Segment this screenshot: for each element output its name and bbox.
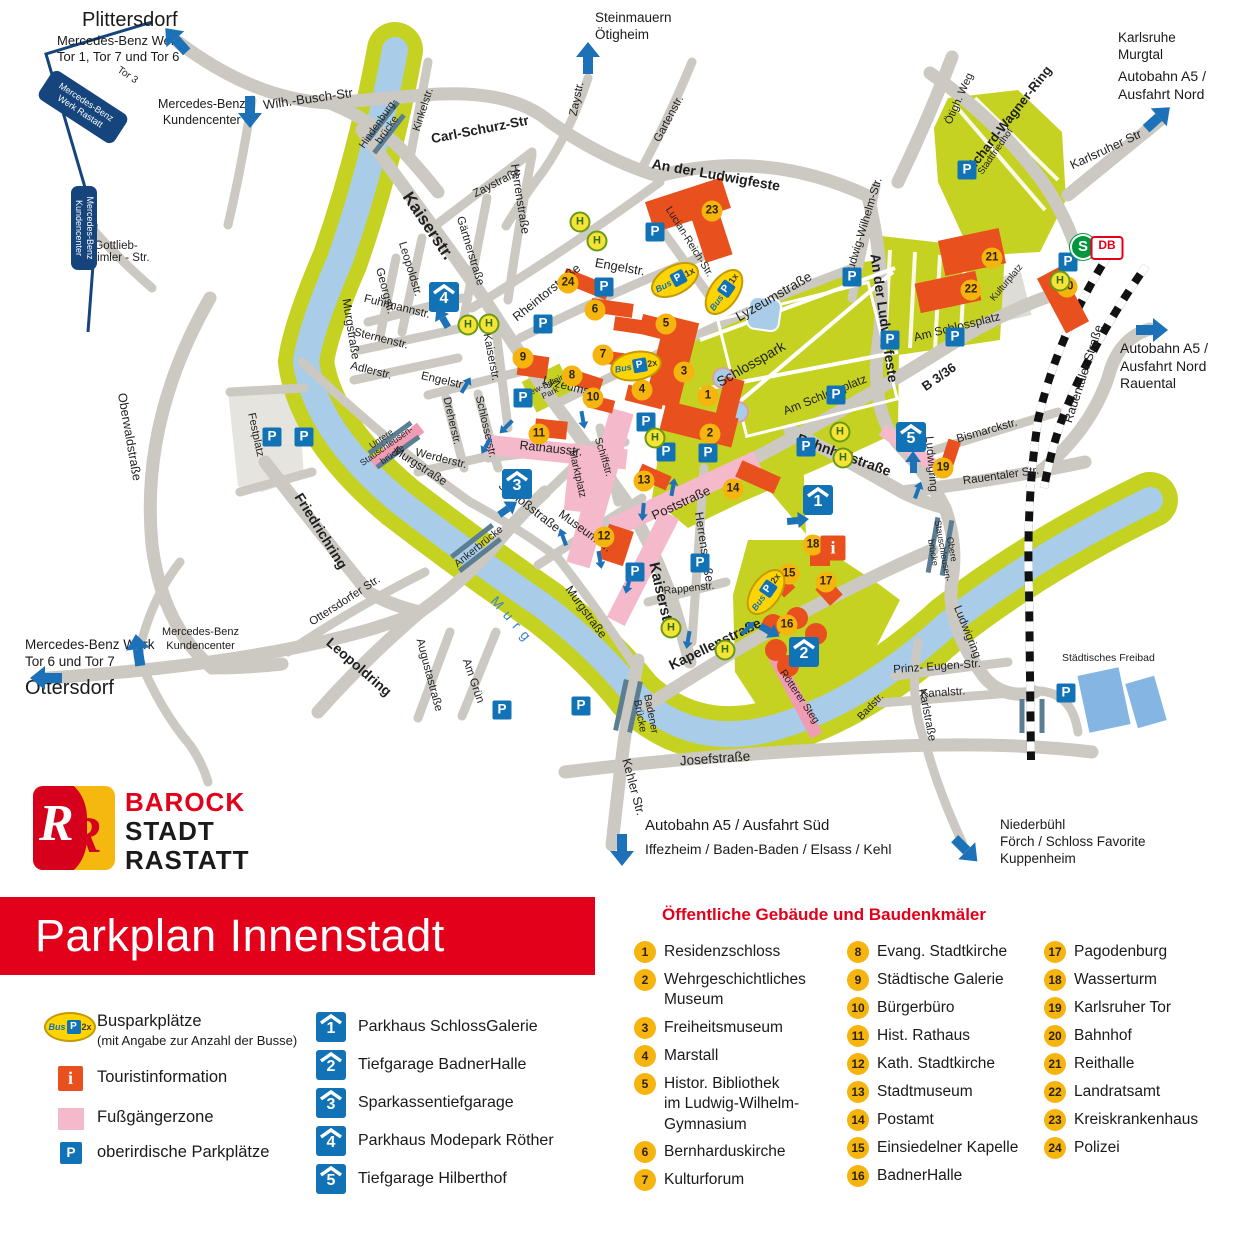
building-number-badge: 16 xyxy=(847,1165,869,1187)
building-number-badge: 6 xyxy=(634,1141,656,1163)
one-way-arrow xyxy=(496,417,516,437)
street-label: Murg xyxy=(488,594,538,649)
building-label: Bahnhof xyxy=(1074,1025,1240,1047)
building-number-badge: 20 xyxy=(1044,1025,1066,1047)
street-label: Lyzeumstraße xyxy=(734,270,815,325)
street-label: Karlsruher Str xyxy=(1068,128,1143,172)
page-title: Parkplan Innenstadt xyxy=(35,910,445,962)
street-label: Gartenstr. xyxy=(652,94,686,144)
building-list-item: 10Bürgerbüro xyxy=(847,997,1072,1019)
building-number-badge: 4 xyxy=(634,1045,656,1067)
building-label: Stadtmuseum xyxy=(877,1081,1072,1103)
destination-label: Mercedes-BenzKundencenter xyxy=(162,626,239,654)
bus-stop-icon: H xyxy=(479,314,500,335)
street-label: Wilh.-Busch-Str xyxy=(262,86,353,112)
street-label: Gärtnerstraße xyxy=(454,215,486,287)
bus-parking-oval: BusP2x xyxy=(608,347,664,386)
buildings-column: 8Evang. Stadtkirche9Städtische Galerie10… xyxy=(847,941,1072,1193)
bus-stop-icon: H xyxy=(570,212,591,233)
poi-marker-21: 21 xyxy=(982,248,1003,269)
tourist-info-icon: i xyxy=(821,536,846,561)
building-number-badge: 8 xyxy=(847,941,869,963)
street-label: Rappenstr. xyxy=(663,581,715,597)
parking-icon: P xyxy=(827,386,846,405)
street-label: Oberwaldstraße xyxy=(115,392,143,482)
one-way-arrow xyxy=(577,410,590,429)
building-number-badge: 18 xyxy=(1044,969,1066,991)
parking-icon: P xyxy=(534,315,553,334)
building-number-badge: 2 xyxy=(634,969,656,991)
parkhaus-legend-label: Parkhaus Modepark Röther xyxy=(358,1132,554,1150)
street-label: Herrenstraße xyxy=(508,163,531,235)
building-list-item: 14Postamt xyxy=(847,1109,1072,1131)
parkhaus-legend-item: 4Parkhaus Modepark Röther xyxy=(316,1126,554,1156)
building-label: Freiheitsmuseum xyxy=(664,1017,844,1039)
parking-icon: P xyxy=(1059,253,1078,272)
parking-icon: P xyxy=(514,389,533,408)
logo-line3: RASTATT xyxy=(125,847,249,873)
bus-parking-legend-icon: BusP2x xyxy=(44,1012,96,1042)
poi-marker-17: 17 xyxy=(816,572,837,593)
bus-stop-icon: H xyxy=(661,618,682,639)
buildings-column: 17Pagodenburg18Wasserturm19Karlsruher To… xyxy=(1044,941,1240,1165)
building-number-badge: 13 xyxy=(847,1081,869,1103)
building-number-badge: 15 xyxy=(847,1137,869,1159)
building-list-item: 24Polizei xyxy=(1044,1137,1240,1159)
building-list-item: 11Hist. Rathaus xyxy=(847,1025,1072,1047)
building-number-badge: 24 xyxy=(1044,1137,1066,1159)
street-label: Fuhrmannstr. xyxy=(363,293,432,321)
parking-icon: P xyxy=(572,697,591,716)
parkhaus-marker-2: 2 xyxy=(789,637,819,667)
logo-line2: STADT xyxy=(125,818,249,844)
bus-stop-icon: H xyxy=(458,315,479,336)
bus-stop-icon: H xyxy=(830,422,851,443)
poi-marker-6: 6 xyxy=(585,300,606,321)
logo-red-r: R xyxy=(67,806,102,865)
street-label: Rauentaler Straße xyxy=(1062,323,1106,424)
destination-label: Autobahn A5 / Ausfahrt Süd xyxy=(645,817,829,836)
street-label: Leopoldstr. xyxy=(396,240,424,297)
poi-marker-8: 8 xyxy=(562,366,583,387)
building-number-badge: 9 xyxy=(847,969,869,991)
building-list-item: 7Kulturforum xyxy=(634,1169,844,1191)
building-list-item: 5Histor. Bibliothek im Ludwig-Wilhelm- G… xyxy=(634,1073,844,1135)
one-way-arrow xyxy=(667,477,680,496)
building-label: Marstall xyxy=(664,1045,844,1067)
building-number-badge: 14 xyxy=(847,1109,869,1131)
building-number-badge: 10 xyxy=(847,997,869,1019)
parkhaus-legend-label: Sparkassentiefgarage xyxy=(358,1094,514,1112)
surface-parking-legend-icon: P xyxy=(60,1142,82,1164)
parkhaus-marker-3: 3 xyxy=(502,469,532,499)
building-list-item: 15Einsiedelner Kapelle xyxy=(847,1137,1072,1159)
building-number-badge: 1 xyxy=(634,941,656,963)
building-label: Bürgerbüro xyxy=(877,997,1072,1019)
buildings-column: 1Residenzschloss2Wehrgeschichtliches Mus… xyxy=(634,941,844,1197)
tourist-info-legend-icon: i xyxy=(58,1066,83,1091)
poi-marker-19: 19 xyxy=(933,458,954,479)
poi-marker-3: 3 xyxy=(674,362,695,383)
street-label: Leopoldring xyxy=(324,635,395,699)
parkhaus-legend-icon: 4 xyxy=(316,1126,346,1156)
street-label: Badener Brücke xyxy=(630,693,659,736)
street-label: Schiffstr. xyxy=(592,436,614,478)
building-list-item: 23Kreiskrankenhaus xyxy=(1044,1109,1240,1131)
street-label: Prinz- Eugen-Str. xyxy=(893,658,981,676)
street-label: Augustastraße xyxy=(413,637,444,712)
street-label: Adlerstr. xyxy=(349,360,393,382)
building-label: Postamt xyxy=(877,1109,1072,1131)
street-label: Kehler Str. xyxy=(619,757,647,817)
poi-marker-10: 10 xyxy=(583,388,604,409)
building-label: Histor. Bibliothek im Ludwig-Wilhelm- Gy… xyxy=(664,1073,844,1135)
parkplan-poster: PlittersdorfMercedes-Benz WerkTor 1, Tor… xyxy=(0,0,1240,1240)
building-label: Städtische Galerie xyxy=(877,969,1072,991)
direction-arrow xyxy=(238,96,262,128)
direction-arrow xyxy=(124,632,152,667)
poi-marker-11: 11 xyxy=(529,424,550,445)
building-number-badge: 21 xyxy=(1044,1053,1066,1075)
poi-marker-7: 7 xyxy=(593,345,614,366)
poi-marker-1: 1 xyxy=(698,386,719,407)
one-way-arrow xyxy=(621,575,635,595)
building-label: Reithalle xyxy=(1074,1053,1240,1075)
poi-marker-23: 23 xyxy=(702,201,723,222)
parking-icon: P xyxy=(699,444,718,463)
street-label: Rötterer Steg xyxy=(777,668,821,726)
building-label: Residenzschloss xyxy=(664,941,844,963)
destination-label: Iffezheim / Baden-Baden / Elsass / Kehl xyxy=(645,841,891,859)
logo-line1: BAROCK xyxy=(125,789,249,815)
building-label: Pagodenburg xyxy=(1074,941,1240,963)
parkhaus-legend-icon: 2 xyxy=(316,1050,346,1080)
bus-oval-text: Bus xyxy=(48,1022,65,1032)
parking-icon: P xyxy=(493,701,512,720)
city-map: PlittersdorfMercedes-Benz WerkTor 1, Tor… xyxy=(0,0,1240,895)
street-label: Marktplatz xyxy=(566,449,588,499)
parkhaus-legend-item: 5Tiefgarage Hilberthof xyxy=(316,1164,507,1194)
street-label: Carl-Schurz-Str xyxy=(430,114,530,147)
poi-marker-4: 4 xyxy=(632,380,653,401)
pedestrian-zone-legend-label: Fußgängerzone xyxy=(97,1108,214,1127)
one-way-arrow xyxy=(910,480,926,500)
direction-arrow xyxy=(1138,98,1178,137)
parkhaus-legend-icon: 1 xyxy=(316,1012,346,1042)
building-label: Landratsamt xyxy=(1074,1081,1240,1103)
direction-arrow xyxy=(576,42,600,74)
parkhaus-legend-label: Tiefgarage BadnerHalle xyxy=(358,1056,526,1074)
tourist-info-legend-label: Touristinformation xyxy=(97,1068,227,1087)
street-label: Ludwigring xyxy=(951,604,983,660)
poi-marker-5: 5 xyxy=(656,314,677,335)
building-list-item: 20Bahnhof xyxy=(1044,1025,1240,1047)
building-list-item: 16BadnerHalle xyxy=(847,1165,1072,1187)
building-label: Kath. Stadtkirche xyxy=(877,1053,1072,1075)
poi-marker-2: 2 xyxy=(700,424,721,445)
one-way-arrow xyxy=(637,503,649,522)
map-overlay-labels: PlittersdorfMercedes-Benz WerkTor 1, Tor… xyxy=(0,0,1240,895)
parkhaus-legend-item: 3Sparkassentiefgarage xyxy=(316,1088,514,1118)
destination-label: KarlsruheMurgtal xyxy=(1118,30,1176,64)
street-label: Kinkelstr. xyxy=(412,87,437,133)
street-label: Josefstraße xyxy=(679,749,750,768)
direction-arrow xyxy=(610,834,634,866)
mercedes-label-box: Mercedes-BenzKundencenter xyxy=(71,186,97,270)
parkhaus-legend-icon: 3 xyxy=(316,1088,346,1118)
direction-arrow xyxy=(946,830,986,870)
bus-stop-icon: H xyxy=(1050,271,1071,292)
street-label: Friedrichring xyxy=(292,490,350,571)
building-label: Karlsruher Tor xyxy=(1074,997,1240,1019)
destination-label: Städtisches Freibad xyxy=(1062,652,1155,665)
building-list-item: 8Evang. Stadtkirche xyxy=(847,941,1072,963)
street-label: Bismarckstr. xyxy=(955,417,1019,446)
building-number-badge: 23 xyxy=(1044,1109,1066,1131)
buildings-legend-heading: Öffentliche Gebäude und Baudenkmäler xyxy=(662,905,986,925)
street-label: Badstr. xyxy=(856,691,887,722)
building-number-badge: 11 xyxy=(847,1025,869,1047)
parkhaus-entrance-arrow xyxy=(905,451,921,473)
building-list-item: 21Reithalle xyxy=(1044,1053,1240,1075)
mercedes-label-box: Mercedes-BenzWerk Rastatt xyxy=(36,68,130,146)
bus-stop-icon: H xyxy=(645,428,666,449)
street-label: Hindenburg- brücke xyxy=(357,97,408,157)
street-label: Rauentaler Str. xyxy=(962,465,1040,488)
building-number-badge: 22 xyxy=(1044,1081,1066,1103)
building-list-item: 18Wasserturm xyxy=(1044,969,1240,991)
destination-label: Mercedes-BenzKundencenter xyxy=(158,97,246,128)
surface-parking-legend-label: oberirdische Parkplätze xyxy=(97,1143,269,1162)
building-label: Wasserturm xyxy=(1074,969,1240,991)
parking-icon: P xyxy=(946,328,965,347)
building-label: Kreiskrankenhaus xyxy=(1074,1109,1240,1131)
street-label: An der Ludwigfeste xyxy=(868,253,901,384)
street-label: Tor 3 xyxy=(115,65,139,86)
building-list-item: 19Karlsruher Tor xyxy=(1044,997,1240,1019)
building-label: Kulturforum xyxy=(664,1169,844,1191)
street-label: Am Schlossplatz xyxy=(782,373,869,418)
parkhaus-legend-item: 1Parkhaus SchlossGalerie xyxy=(316,1012,538,1042)
building-label: Einsiedelner Kapelle xyxy=(877,1137,1072,1159)
parkhaus-marker-5: 5 xyxy=(896,422,926,452)
bus-parking-legend-sublabel: (mit Angabe zur Anzahl der Busse) xyxy=(97,1033,297,1048)
street-label: Engelstr. xyxy=(594,256,646,278)
building-label: Bernharduskirche xyxy=(664,1141,844,1163)
parking-icon: P xyxy=(1057,684,1076,703)
street-label: Ankerbrücke xyxy=(453,524,506,570)
parking-icon: P xyxy=(797,438,816,457)
street-label: Ötigh. Weg xyxy=(944,72,977,127)
parking-icon: P xyxy=(263,428,282,447)
street-label: Schlosspark xyxy=(714,339,787,390)
street-label: B 3/36 xyxy=(919,360,958,393)
destination-label: Autobahn A5 /Ausfahrt NordRauental xyxy=(1120,340,1208,393)
street-label: Obere Stauschleusen- brücke xyxy=(923,518,962,584)
building-list-item: 1Residenzschloss xyxy=(634,941,844,963)
building-label: Wehrgeschichtliches Museum xyxy=(664,969,844,1011)
building-number-badge: 12 xyxy=(847,1053,869,1075)
poi-marker-14: 14 xyxy=(723,479,744,500)
building-number-badge: 3 xyxy=(634,1017,656,1039)
parking-icon: P xyxy=(958,161,977,180)
building-list-item: 17Pagodenburg xyxy=(1044,941,1240,963)
building-number-badge: 19 xyxy=(1044,997,1066,1019)
direction-arrow xyxy=(30,666,62,690)
db-rail-icon: DB xyxy=(1091,236,1124,260)
parking-icon: P xyxy=(843,268,862,287)
street-label: Murgstraße xyxy=(563,583,609,640)
parkhaus-legend-icon: 5 xyxy=(316,1164,346,1194)
poi-marker-12: 12 xyxy=(594,527,615,548)
building-number-badge: 7 xyxy=(634,1169,656,1191)
poi-marker-13: 13 xyxy=(634,471,655,492)
street-label: Kaiserstr. xyxy=(481,332,502,381)
poi-marker-24: 24 xyxy=(558,273,579,294)
building-label: Hist. Rathaus xyxy=(877,1025,1072,1047)
bus-parking-legend-label: Busparkplätze xyxy=(97,1012,202,1031)
bus-stop-icon: H xyxy=(587,231,608,252)
bus-oval-p: P xyxy=(67,1020,81,1034)
title-banner: Parkplan Innenstadt xyxy=(0,897,595,975)
rastatt-logo-emblem: R R xyxy=(33,786,115,870)
building-list-item: 3Freiheitsmuseum xyxy=(634,1017,844,1039)
parkhaus-entrance-arrow xyxy=(786,511,809,529)
bus-stop-icon: H xyxy=(833,448,854,469)
street-label: Ottersdorfer Str. xyxy=(307,574,382,629)
bus-stop-icon: H xyxy=(715,640,736,661)
street-label: Am Grün xyxy=(460,657,486,704)
street-label: Zaystr. xyxy=(568,81,587,117)
building-list-item: 12Kath. Stadtkirche xyxy=(847,1053,1072,1075)
parking-icon: P xyxy=(295,428,314,447)
building-list-item: 2Wehrgeschichtliches Museum xyxy=(634,969,844,1011)
pedestrian-zone-legend-swatch xyxy=(58,1108,84,1130)
poi-marker-9: 9 xyxy=(513,348,534,369)
building-label: Evang. Stadtkirche xyxy=(877,941,1072,963)
poi-marker-22: 22 xyxy=(961,280,982,301)
direction-arrow xyxy=(1136,318,1168,342)
parking-icon: P xyxy=(646,223,665,242)
logo-wordmark: BAROCK STADT RASTATT xyxy=(125,789,249,873)
parkhaus-legend-label: Parkhaus SchlossGalerie xyxy=(358,1018,538,1036)
parkhaus-legend-item: 2Tiefgarage BadnerHalle xyxy=(316,1050,526,1080)
street-label: An der Ludwigfeste xyxy=(651,156,781,193)
building-label: BadnerHalle xyxy=(877,1165,1072,1187)
building-list-item: 4Marstall xyxy=(634,1045,844,1067)
destination-label: SteinmauernÖtigheim xyxy=(595,10,672,44)
building-list-item: 13Stadtmuseum xyxy=(847,1081,1072,1103)
destination-label: NiederbühlFörch / Schloss FavoriteKuppen… xyxy=(1000,817,1146,868)
bus-oval-count: 2x xyxy=(82,1022,92,1032)
building-number-badge: 17 xyxy=(1044,941,1066,963)
street-label: Richard-Wagner-Ring xyxy=(962,63,1055,176)
street-label: Kulturplatz xyxy=(989,263,1025,304)
building-label: Polizei xyxy=(1074,1137,1240,1159)
parkhaus-legend-label: Tiefgarage Hilberthof xyxy=(358,1170,507,1188)
building-list-item: 9Städtische Galerie xyxy=(847,969,1072,991)
one-way-arrow xyxy=(555,527,571,547)
building-list-item: 6Bernharduskirche xyxy=(634,1141,844,1163)
building-number-badge: 5 xyxy=(634,1073,656,1095)
building-list-item: 22Landratsamt xyxy=(1044,1081,1240,1103)
parking-icon: P xyxy=(691,554,710,573)
street-label: Dreherstr. xyxy=(440,396,462,446)
parking-icon: P xyxy=(881,331,900,350)
parking-icon: P xyxy=(595,278,614,297)
